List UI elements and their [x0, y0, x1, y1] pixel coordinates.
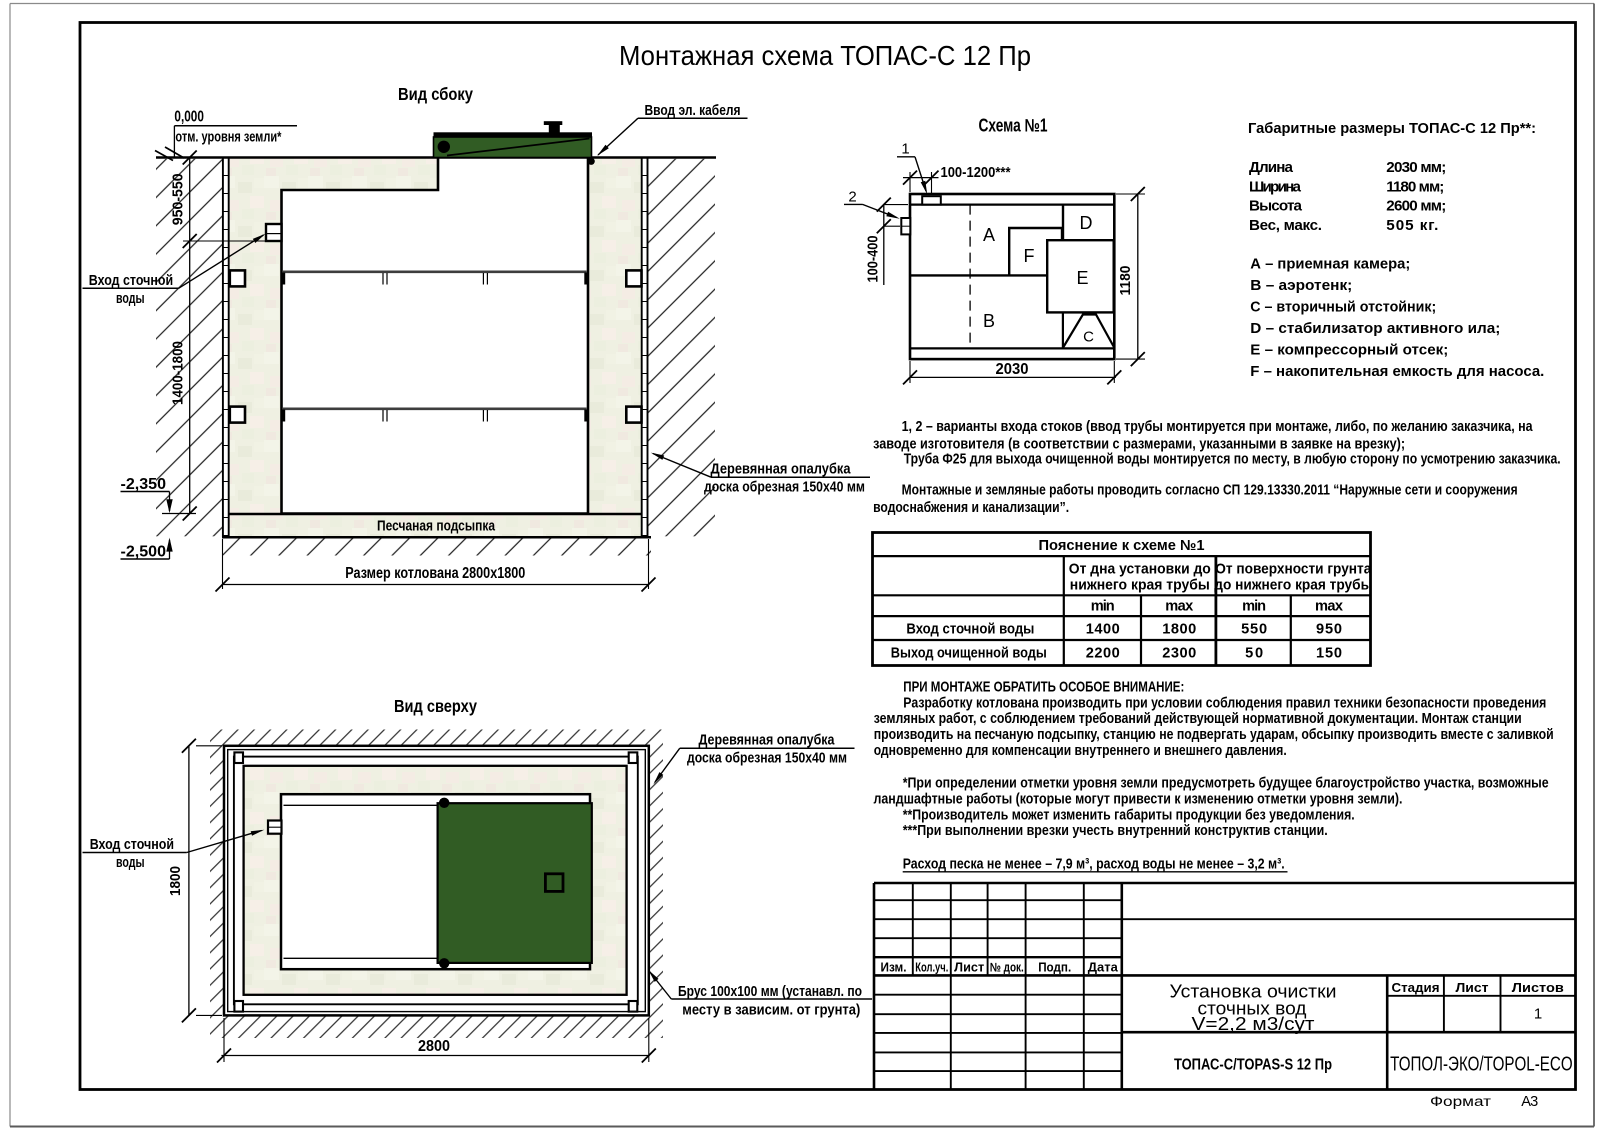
- svg-text:Листов: Листов: [1512, 980, 1564, 995]
- svg-text:С – вторичный отстойник;: С – вторичный отстойник;: [1250, 299, 1436, 316]
- svg-text:550: 550: [1241, 622, 1267, 638]
- svg-text:Кол.уч.: Кол.уч.: [915, 961, 948, 975]
- svg-text:2200: 2200: [1086, 646, 1120, 662]
- svg-text:Разработку котлована производи: Разработку котлована производить при усл…: [903, 694, 1546, 711]
- svg-text:Деревянная опалубка: Деревянная опалубка: [699, 732, 836, 749]
- svg-text:C: C: [1083, 329, 1094, 346]
- svg-text:F: F: [1024, 246, 1035, 266]
- svg-text:2030 мм;: 2030 мм;: [1386, 159, 1446, 176]
- svg-text:Дата: Дата: [1088, 961, 1119, 975]
- svg-text:505 кг.: 505 кг.: [1386, 217, 1438, 234]
- svg-text:Вид сверху: Вид сверху: [394, 696, 477, 716]
- svg-text:ТОПОЛ-ЭКО/TOPOL-ECO: ТОПОЛ-ЭКО/TOPOL-ECO: [1390, 1053, 1573, 1076]
- svg-text:1400: 1400: [1086, 622, 1120, 638]
- svg-text:2300: 2300: [1162, 646, 1196, 662]
- svg-text:ТОПАС-С/TOPAS-S 12 Пр: ТОПАС-С/TOPAS-S 12 Пр: [1174, 1056, 1332, 1073]
- svg-text:В – аэротенк;: В – аэротенк;: [1250, 277, 1352, 294]
- svg-text:Размер котлована 2800х1800: Размер котлована 2800х1800: [345, 565, 525, 582]
- svg-text:Вход сточной: Вход сточной: [90, 836, 174, 853]
- svg-text:1800: 1800: [1162, 622, 1196, 638]
- svg-text:max: max: [1165, 599, 1194, 615]
- svg-text:Вход сточной: Вход сточной: [89, 272, 173, 289]
- svg-text:max: max: [1315, 599, 1344, 615]
- svg-text:одновременно для компенсации в: одновременно для компенсации внутреннего…: [874, 742, 1287, 759]
- svg-text:доска обрезная 150х40 мм: доска обрезная 150х40 мм: [704, 479, 865, 496]
- svg-text:50: 50: [1245, 646, 1263, 662]
- svg-text:-2,350: -2,350: [121, 476, 167, 493]
- svg-text:Труба Ф25 для выхода очищенной: Труба Ф25 для выхода очищенной воды монт…: [904, 451, 1561, 468]
- svg-text:0,000: 0,000: [174, 109, 204, 126]
- svg-text:Вид сбоку: Вид сбоку: [398, 84, 473, 104]
- svg-text:950-550: 950-550: [170, 173, 187, 225]
- svg-text:E: E: [1076, 268, 1088, 288]
- svg-text:B: B: [983, 311, 995, 331]
- svg-text:1, 2 – варианты входа стоков: 1, 2 – варианты входа стоков (ввод трубы…: [902, 418, 1534, 435]
- svg-text:воды: воды: [116, 854, 145, 871]
- svg-text:нижнего края трубы: нижнего края трубы: [1070, 578, 1210, 594]
- svg-text:земляных работ, с соблюдением: земляных работ, с соблюдением требований…: [874, 710, 1522, 727]
- svg-text:месту в зависим. от грунта): месту в зависим. от грунта): [682, 1002, 860, 1019]
- svg-text:Выход очищенной воды: Выход очищенной воды: [891, 646, 1047, 662]
- svg-text:-2,500: -2,500: [121, 544, 167, 561]
- svg-text:Брус 100х100 мм (устанавл. по: Брус 100х100 мм (устанавл. по: [678, 983, 862, 1000]
- svg-text:От дна установки до: От дна установки до: [1069, 562, 1211, 578]
- svg-text:Пояснение к схеме №1: Пояснение к схеме №1: [1039, 538, 1205, 554]
- svg-text:1: 1: [901, 141, 909, 158]
- svg-text:Ширина: Ширина: [1249, 178, 1302, 195]
- svg-text:950: 950: [1316, 622, 1342, 638]
- svg-text:1400-1800: 1400-1800: [170, 341, 187, 405]
- svg-text:ландшафтные работы (которые мо: ландшафтные работы (которые могут привес…: [874, 791, 1403, 808]
- svg-text:Вес, макс.: Вес, макс.: [1249, 217, 1322, 234]
- svg-text:Высота: Высота: [1249, 198, 1303, 215]
- svg-text:до нижнего края трубы: до нижнего края трубы: [1214, 578, 1372, 594]
- svg-text:2600 мм;: 2600 мм;: [1386, 198, 1446, 215]
- svg-text:A: A: [983, 225, 995, 245]
- svg-text:2: 2: [848, 189, 856, 206]
- svg-text:А – приемная камера;: А – приемная камера;: [1250, 256, 1410, 273]
- svg-text:Лист: Лист: [954, 961, 984, 975]
- svg-text:Формат: Формат: [1430, 1094, 1492, 1110]
- svg-text:Схема №1: Схема №1: [979, 116, 1048, 136]
- svg-text:А3: А3: [1521, 1094, 1538, 1110]
- svg-text:От поверхности грунта: От поверхности грунта: [1215, 562, 1372, 578]
- svg-text:min: min: [1242, 599, 1266, 615]
- svg-text:Песчаная подсыпка: Песчаная подсыпка: [377, 518, 496, 535]
- svg-text:водоснабжения и канализации”.: водоснабжения и канализации”.: [873, 499, 1069, 516]
- svg-text:*При определении отметки уровн: *При определении отметки уровня земли пр…: [903, 774, 1549, 791]
- svg-text:Ввод эл. кабеля: Ввод эл. кабеля: [645, 102, 741, 119]
- svg-text:100-400: 100-400: [865, 236, 882, 283]
- svg-text:Изм.: Изм.: [881, 961, 907, 975]
- svg-text:Лист: Лист: [1456, 980, 1490, 995]
- svg-text:V=2,2 м3/сут: V=2,2 м3/сут: [1192, 1013, 1316, 1034]
- svg-text:2800: 2800: [418, 1038, 450, 1055]
- svg-text:воды: воды: [116, 290, 145, 307]
- svg-text:Монтажная схема ТОПАС-С 12 Пр: Монтажная схема ТОПАС-С 12 Пр: [619, 40, 1031, 71]
- svg-text:№ док.: № док.: [990, 961, 1024, 975]
- svg-text:**Производитель может изменить: **Производитель может изменить габариты …: [903, 806, 1355, 823]
- svg-text:Деревянная опалубка: Деревянная опалубка: [711, 461, 852, 478]
- svg-text:1180: 1180: [1117, 266, 1134, 296]
- svg-text:F – накопительная емкость для: F – накопительная емкость для насоса.: [1250, 363, 1544, 380]
- svg-text:1: 1: [1534, 1006, 1542, 1023]
- svg-text:отм. уровня земли*: отм. уровня земли*: [175, 130, 281, 146]
- svg-text:Габаритные размеры ТОПАС-С 12: Габаритные размеры ТОПАС-С 12 Пр**:: [1248, 120, 1536, 137]
- svg-text:min: min: [1091, 599, 1115, 615]
- svg-text:***При выполнении врезки учест: ***При выполнении врезки учесть внутренн…: [903, 822, 1328, 839]
- svg-text:Подп.: Подп.: [1038, 961, 1071, 975]
- svg-text:1800: 1800: [167, 866, 184, 896]
- svg-text:D: D: [1080, 213, 1093, 233]
- svg-text:Е – компрессорный отсек;: Е – компрессорный отсек;: [1250, 342, 1448, 359]
- svg-text:доска обрезная 150х40 мм: доска обрезная 150х40 мм: [687, 750, 847, 767]
- svg-text:D – стабилизатор активного ила: D – стабилизатор активного ила;: [1250, 320, 1500, 337]
- svg-text:150: 150: [1316, 646, 1342, 662]
- svg-text:Вход сточной воды: Вход сточной воды: [906, 622, 1034, 638]
- svg-text:Монтажные и земляные работы пр: Монтажные и земляные работы проводить со…: [902, 481, 1518, 498]
- svg-text:ПРИ МОНТАЖЕ ОБРАТИТЬ ОСОБОЕ ВН: ПРИ МОНТАЖЕ ОБРАТИТЬ ОСОБОЕ ВНИМАНИЕ:: [903, 678, 1184, 695]
- svg-text:Стадия: Стадия: [1392, 980, 1440, 995]
- svg-text:1180 мм;: 1180 мм;: [1386, 178, 1444, 195]
- svg-text:Длина: Длина: [1249, 159, 1294, 176]
- svg-text:производить на песчаную подсып: производить на песчаную подсыпку, станци…: [874, 726, 1554, 743]
- svg-text:2030: 2030: [996, 361, 1029, 378]
- svg-text:Расход песка не менее – 7,9 м³: Расход песка не менее – 7,9 м³, расход в…: [903, 855, 1285, 872]
- svg-text:100-1200***: 100-1200***: [941, 164, 1011, 181]
